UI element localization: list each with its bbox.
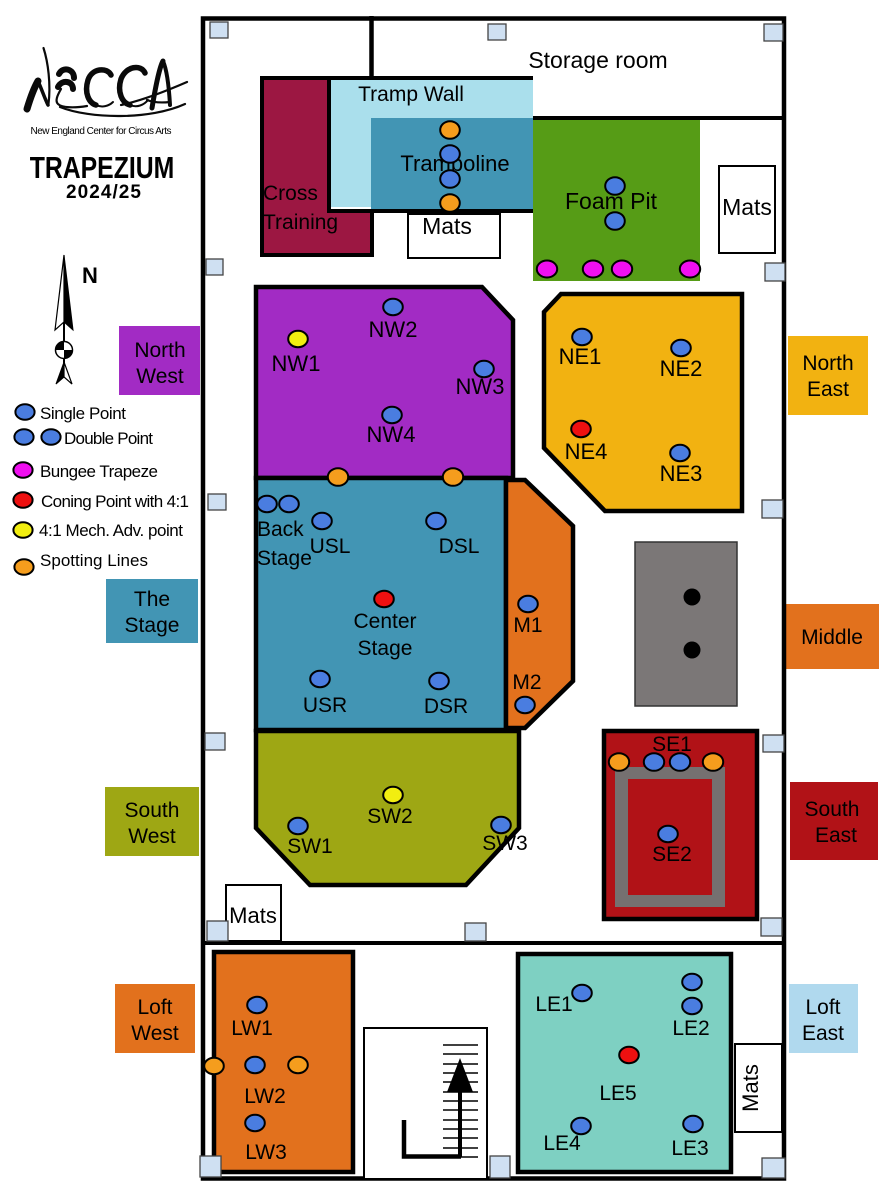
svg-text:NE3: NE3 bbox=[660, 461, 703, 486]
svg-text:LW1: LW1 bbox=[231, 1017, 273, 1040]
svg-text:The: The bbox=[134, 588, 170, 611]
svg-text:LE2: LE2 bbox=[672, 1017, 709, 1040]
svg-text:Cross: Cross bbox=[263, 182, 318, 205]
svg-text:M2: M2 bbox=[512, 671, 541, 694]
svg-text:NW2: NW2 bbox=[369, 317, 418, 342]
svg-text:LE5: LE5 bbox=[599, 1082, 636, 1105]
svg-text:West: West bbox=[128, 825, 176, 848]
svg-text:Single Point: Single Point bbox=[40, 404, 126, 423]
svg-text:SE1: SE1 bbox=[652, 733, 692, 756]
svg-text:North: North bbox=[134, 339, 185, 362]
svg-text:Back: Back bbox=[257, 518, 304, 541]
svg-text:LE4: LE4 bbox=[543, 1132, 581, 1155]
svg-text:Stage: Stage bbox=[125, 614, 180, 637]
svg-text:East: East bbox=[815, 824, 857, 847]
svg-text:2024/25: 2024/25 bbox=[66, 182, 142, 203]
svg-text:Loft: Loft bbox=[137, 996, 172, 1019]
svg-text:DSL: DSL bbox=[439, 535, 480, 558]
svg-text:NW4: NW4 bbox=[367, 422, 416, 447]
svg-text:USR: USR bbox=[303, 694, 347, 717]
svg-text:TRAPEZIUM: TRAPEZIUM bbox=[30, 150, 175, 184]
svg-text:Middle: Middle bbox=[801, 626, 863, 649]
svg-text:New England Center for Circus: New England Center for Circus Arts bbox=[31, 126, 172, 137]
svg-text:West: West bbox=[131, 1022, 179, 1045]
svg-text:Mats: Mats bbox=[722, 194, 772, 220]
svg-text:DSR: DSR bbox=[424, 695, 468, 718]
svg-text:SW3: SW3 bbox=[482, 832, 528, 855]
svg-text:NW3: NW3 bbox=[456, 374, 505, 399]
svg-text:LW2: LW2 bbox=[244, 1085, 286, 1108]
svg-text:SE2: SE2 bbox=[652, 843, 692, 866]
svg-text:Double Point: Double Point bbox=[64, 429, 153, 448]
svg-text:LE3: LE3 bbox=[671, 1137, 708, 1160]
svg-text:USL: USL bbox=[310, 535, 351, 558]
svg-text:South: South bbox=[805, 798, 860, 821]
svg-text:North: North bbox=[802, 352, 853, 375]
svg-text:South: South bbox=[125, 799, 180, 822]
svg-text:East: East bbox=[807, 378, 849, 401]
svg-text:4:1 Mech. Adv. point: 4:1 Mech. Adv. point bbox=[39, 521, 183, 540]
svg-text:Mats: Mats bbox=[422, 213, 472, 239]
svg-text:Stage: Stage bbox=[257, 547, 312, 570]
svg-text:M1: M1 bbox=[513, 614, 542, 637]
svg-text:East: East bbox=[802, 1022, 844, 1045]
svg-text:LE1: LE1 bbox=[535, 993, 572, 1016]
svg-text:NE1: NE1 bbox=[559, 344, 602, 369]
svg-text:Mats: Mats bbox=[229, 903, 277, 928]
svg-text:N: N bbox=[82, 263, 98, 288]
svg-text:Stage: Stage bbox=[358, 637, 413, 660]
svg-text:Training: Training bbox=[263, 211, 338, 234]
svg-text:Coning Point with 4:1: Coning Point with 4:1 bbox=[41, 492, 189, 511]
svg-text:LW3: LW3 bbox=[245, 1141, 287, 1164]
svg-text:Tramp Wall: Tramp Wall bbox=[358, 83, 464, 106]
svg-text:NE4: NE4 bbox=[565, 439, 608, 464]
svg-text:Center: Center bbox=[353, 610, 416, 633]
svg-text:SW1: SW1 bbox=[287, 835, 333, 858]
svg-text:West: West bbox=[136, 365, 184, 388]
svg-text:NW1: NW1 bbox=[272, 351, 321, 376]
svg-text:SW2: SW2 bbox=[367, 805, 413, 828]
svg-text:NE2: NE2 bbox=[660, 356, 703, 381]
svg-text:Spotting Lines: Spotting Lines bbox=[40, 551, 148, 570]
svg-text:Loft: Loft bbox=[805, 996, 840, 1019]
svg-text:Mats: Mats bbox=[738, 1064, 763, 1112]
svg-text:Storage room: Storage room bbox=[528, 47, 667, 73]
svg-text:Bungee Trapeze: Bungee Trapeze bbox=[40, 462, 158, 481]
